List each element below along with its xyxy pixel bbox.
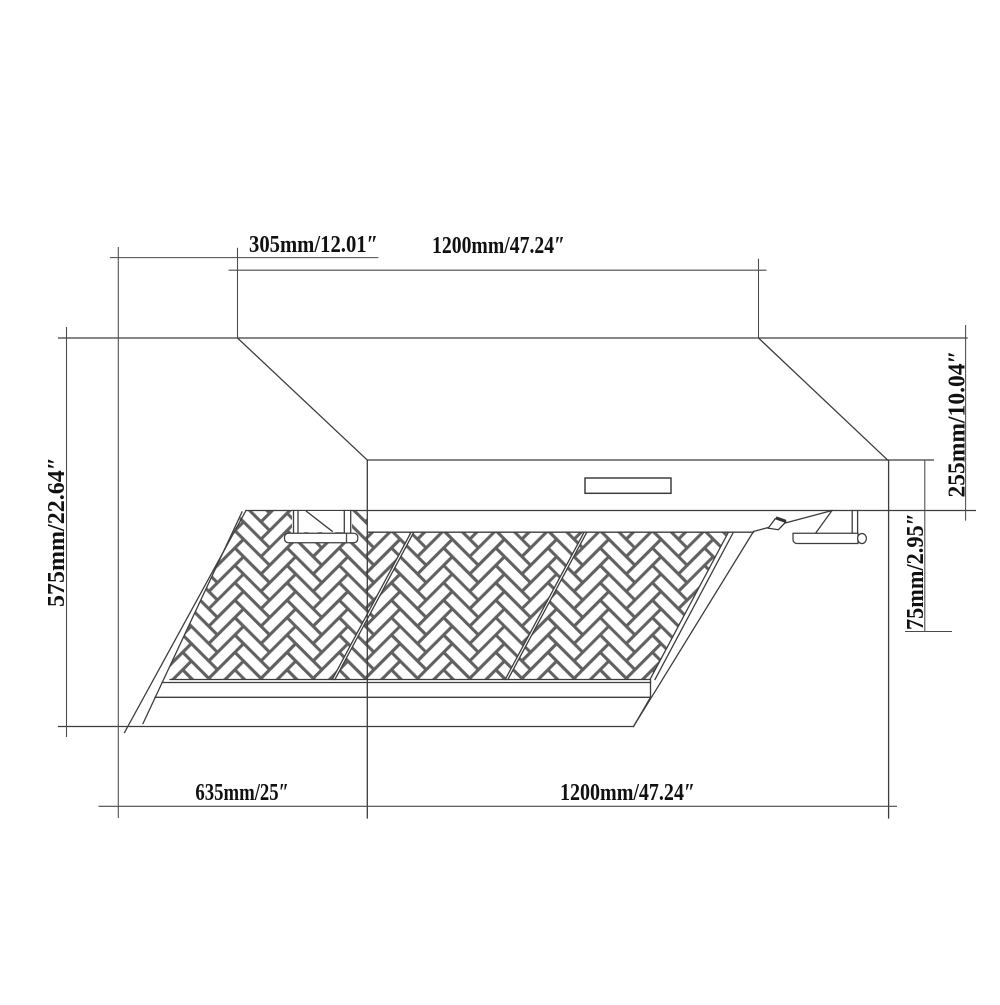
svg-text:305mm/12.01″: 305mm/12.01″ (249, 232, 378, 258)
svg-text:75mm/2.95″: 75mm/2.95″ (903, 513, 929, 630)
svg-text:1200mm/47.24″: 1200mm/47.24″ (560, 780, 695, 806)
svg-text:255mm/10.04″: 255mm/10.04″ (945, 351, 971, 498)
svg-text:575mm/22.64″: 575mm/22.64″ (44, 457, 70, 607)
svg-text:635mm/25″: 635mm/25″ (195, 780, 289, 806)
svg-text:1200mm/47.24″: 1200mm/47.24″ (432, 233, 565, 259)
